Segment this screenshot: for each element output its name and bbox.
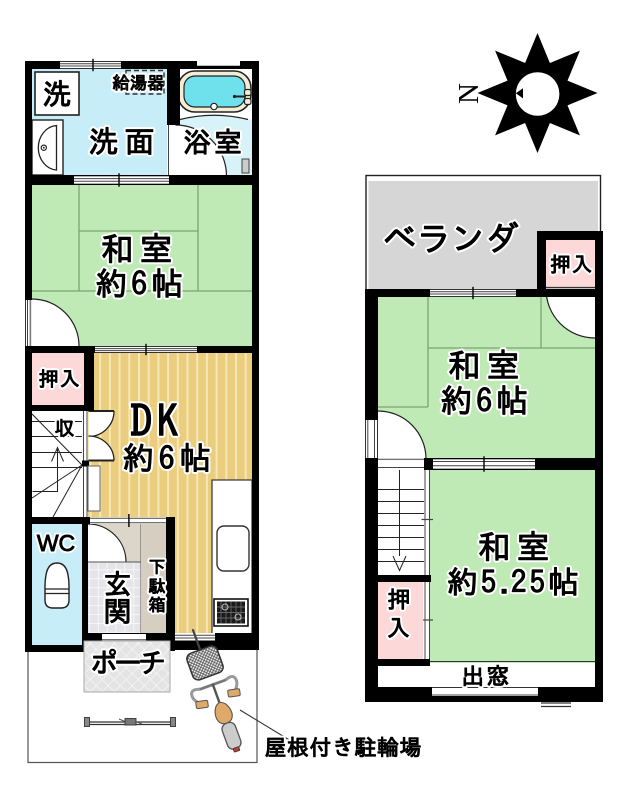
- svg-text:N: N: [453, 83, 485, 104]
- svg-text:WC: WC: [37, 530, 75, 556]
